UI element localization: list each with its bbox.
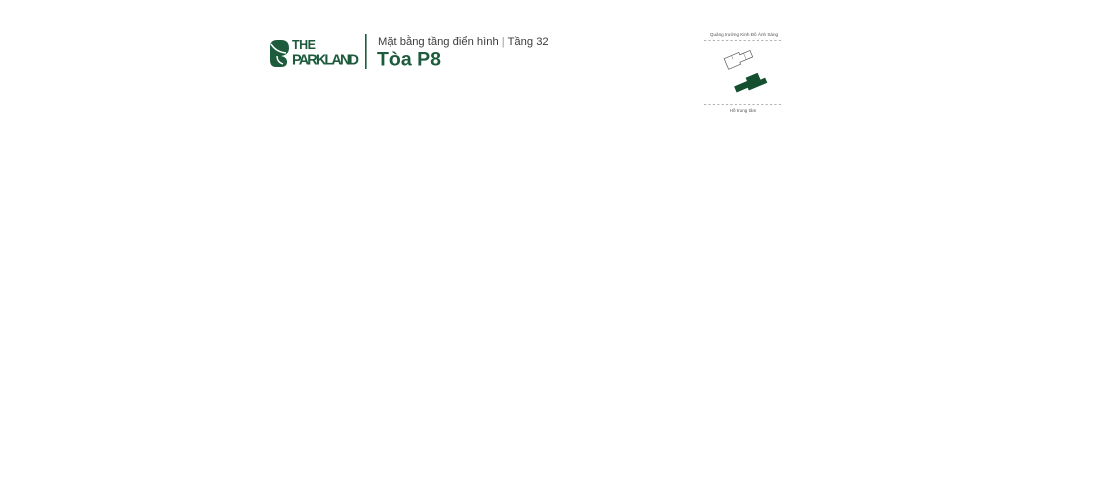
svg-text:PARKLAND: PARKLAND: [292, 53, 359, 69]
svg-text:Hồ trung tâm: Hồ trung tâm: [730, 108, 757, 113]
svg-text:Quảng trường Kinh Đô Ánh Sáng: Quảng trường Kinh Đô Ánh Sáng: [710, 31, 779, 37]
svg-text:Tòa P8: Tòa P8: [377, 49, 441, 71]
svg-text:THE: THE: [292, 38, 316, 52]
svg-text:Mặt bằng tầng điển hình | Tầng: Mặt bằng tầng điển hình | Tầng 32: [378, 35, 549, 48]
